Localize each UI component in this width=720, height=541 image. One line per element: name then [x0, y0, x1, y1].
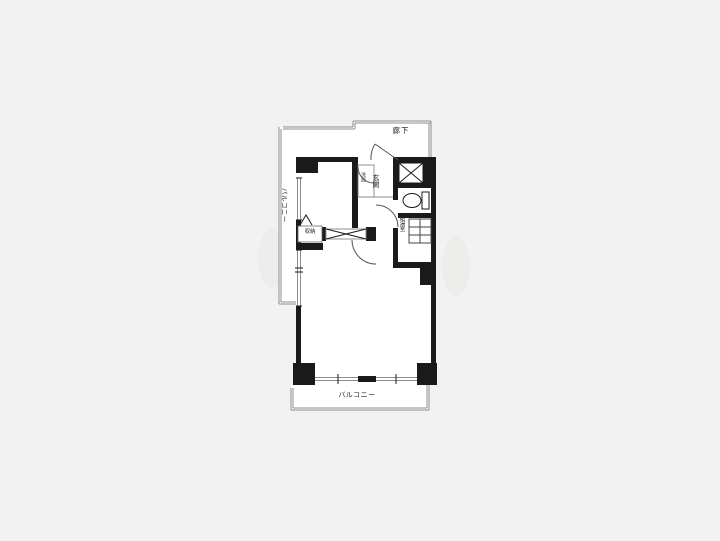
balcony-bottom-label: バルコニー: [328, 392, 386, 399]
washroom-label: 洗面: [360, 172, 365, 182]
floorplan-canvas: 廊下 玄関 洗面 給湯室 収納 バルコニー バルコニー: [0, 0, 720, 541]
entrance-label: 玄関: [372, 174, 379, 188]
shaft-x-icon: [399, 163, 424, 184]
toilet-icon: [403, 192, 429, 209]
storage-label: 収納: [299, 230, 321, 236]
balcony-left-label: バルコニー: [281, 188, 288, 223]
sliding-door-icon: [326, 229, 366, 239]
floorplan-drawing: [0, 0, 720, 541]
corridor-label: 廊下: [386, 127, 416, 135]
kitchenette-label: 給湯室: [398, 215, 404, 232]
counter-grid-icon: [409, 219, 431, 243]
